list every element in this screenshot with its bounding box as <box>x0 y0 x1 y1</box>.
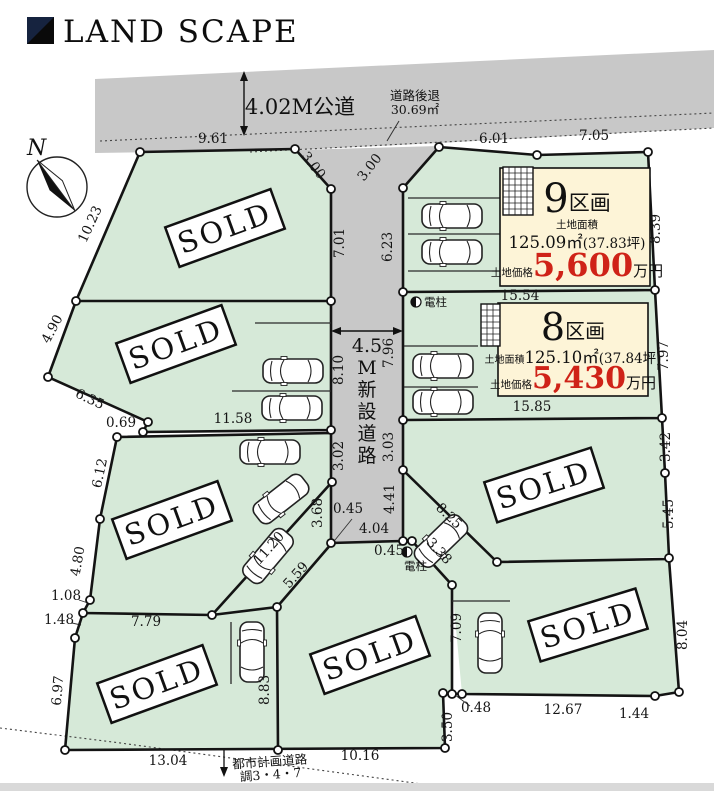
car-icon <box>422 238 482 267</box>
compass: N <box>26 136 87 217</box>
setback-label-2: 30.69㎡ <box>391 102 440 117</box>
measurement-label: 6.23 <box>380 232 396 262</box>
vertex-dot <box>458 690 466 698</box>
vertex-dot <box>71 634 79 642</box>
svg-text:4.5: 4.5 <box>352 335 382 357</box>
vertex-dot <box>327 426 335 434</box>
vertex-dot <box>441 744 449 752</box>
measurement-label: 7.97 <box>656 341 672 371</box>
bottom-road-strip <box>0 783 714 791</box>
vertex-dot <box>661 469 669 477</box>
measurement-label: 7.01 <box>332 228 348 258</box>
vertex-dot <box>79 609 87 617</box>
vertex-dot <box>136 148 144 156</box>
vertex-dot <box>291 145 299 153</box>
north-label: N <box>26 136 47 161</box>
setback-label-1: 道路後退 <box>390 88 441 103</box>
building-hatch-lot9 <box>503 167 533 215</box>
measurement-label: 8.39 <box>648 214 664 244</box>
vertex-dot <box>651 286 659 294</box>
vertex-dot <box>327 185 335 193</box>
measurement-label: 1.08 <box>51 588 81 604</box>
vertex-dot <box>61 746 69 754</box>
vertex-dot <box>665 554 673 562</box>
vertex-dot <box>113 433 121 441</box>
measurement-label: 5.45 <box>661 499 677 529</box>
vertex-dot <box>651 692 659 700</box>
measurement-label: 7.05 <box>579 128 609 144</box>
measurement-label: 3.42 <box>658 432 674 462</box>
svg-text:路: 路 <box>357 445 376 467</box>
measurement-label: 0.69 <box>106 415 136 431</box>
plot-map-page: SOLD SOLD SOLD SOLD SOLD SOLD SOLD 9区画 土… <box>0 0 714 791</box>
svg-text:新: 新 <box>357 379 376 401</box>
vertex-dot <box>448 581 456 589</box>
vertex-dot <box>493 558 501 566</box>
car-icon <box>262 394 322 423</box>
measurement-label: 10.23 <box>75 203 106 245</box>
land-plot-map: SOLD SOLD SOLD SOLD SOLD SOLD SOLD 9区画 土… <box>0 0 714 791</box>
measurement-label: 6.97 <box>49 675 68 706</box>
vertex-dot <box>72 297 80 305</box>
car-icon <box>240 438 300 467</box>
vertex-dot <box>533 151 541 159</box>
measurement-label: 7.96 <box>381 338 397 368</box>
measurement-label: 3.68 <box>310 498 326 528</box>
vertex-dot <box>658 414 666 422</box>
vertex-dot <box>208 611 216 619</box>
vertex-dot <box>439 689 447 697</box>
measurement-label: 9.61 <box>198 131 228 147</box>
measurement-label: 0.48 <box>461 700 491 716</box>
vertex-dot <box>96 515 104 523</box>
measurement-label: 15.54 <box>501 288 540 304</box>
lot8-info-box: 8区画 土地面積125.10㎡(37.84坪) 土地価格5,430万円 <box>485 303 662 396</box>
car-icon <box>422 202 482 231</box>
measurement-label: 3.03 <box>381 432 397 462</box>
logo-text: LAND SCAPE <box>63 14 299 50</box>
vertex-dot <box>327 539 335 547</box>
car-icon <box>476 613 505 673</box>
pole-label: 電柱 <box>424 295 447 309</box>
measurement-label: 3.02 <box>331 441 347 471</box>
measurement-label: 4.41 <box>382 484 398 514</box>
vertex-dot <box>435 143 443 151</box>
measurement-label: 11.58 <box>214 411 253 427</box>
measurement-label: 13.04 <box>149 753 188 769</box>
car-icon <box>413 352 473 381</box>
vertex-dot <box>144 418 152 426</box>
measurement-label: 3.50 <box>440 712 456 742</box>
vertex-dot <box>399 466 407 474</box>
measurement-label: 4.80 <box>68 545 89 577</box>
measurement-label: 0.45 <box>333 501 363 517</box>
svg-text:道: 道 <box>357 423 376 445</box>
svg-text:設: 設 <box>357 401 376 423</box>
measurement-label: 10.16 <box>341 748 380 764</box>
measurement-label: 8.83 <box>257 675 273 705</box>
vertex-dot <box>327 297 335 305</box>
compass-needle-icon <box>37 160 75 211</box>
measurement-label: 8.10 <box>331 355 347 385</box>
measurement-label: 6.01 <box>479 131 509 147</box>
svg-text:土地面積: 土地面積 <box>556 218 598 231</box>
vertex-dot <box>86 596 94 604</box>
measurement-label: 8.04 <box>675 620 691 650</box>
vertex-dot <box>399 184 407 192</box>
measurement-label: 1.44 <box>619 706 649 722</box>
svg-text:M: M <box>357 357 376 379</box>
measurement-label: 4.04 <box>359 521 389 537</box>
vertex-dot <box>448 690 456 698</box>
vertex-dot <box>644 148 652 156</box>
car-icon <box>238 622 267 682</box>
vertex-dot <box>399 416 407 424</box>
measurement-label: 0.45 <box>374 543 404 559</box>
vertex-dot <box>328 478 336 486</box>
building-hatch-lot8 <box>481 304 500 346</box>
public-road-label: 4.02M公道 <box>245 95 355 119</box>
vertex-dot <box>44 373 52 381</box>
plan-road-label: 都市計画道路 調3・4・7 <box>232 751 309 784</box>
measurement-label: 1.48 <box>44 612 74 628</box>
measurement-label: 12.67 <box>544 702 583 718</box>
logo: LAND SCAPE <box>27 14 299 50</box>
car-icon <box>413 388 473 417</box>
svg-text:調3・4・7: 調3・4・7 <box>239 765 301 784</box>
vertex-dot <box>273 603 281 611</box>
vertex-dot <box>408 537 416 545</box>
measurement-label: 7.79 <box>131 614 161 630</box>
car-icon <box>263 357 323 386</box>
vertex-dot <box>675 688 683 696</box>
measurement-label: 7.09 <box>449 613 465 643</box>
pole-label: 電柱 <box>404 559 427 573</box>
vertex-dot <box>139 428 147 436</box>
vertex-dot <box>399 288 407 296</box>
measurement-label: 15.85 <box>513 399 552 415</box>
utility-pole-1: 電柱 <box>411 295 447 309</box>
plot-area-upper-left <box>48 149 331 432</box>
